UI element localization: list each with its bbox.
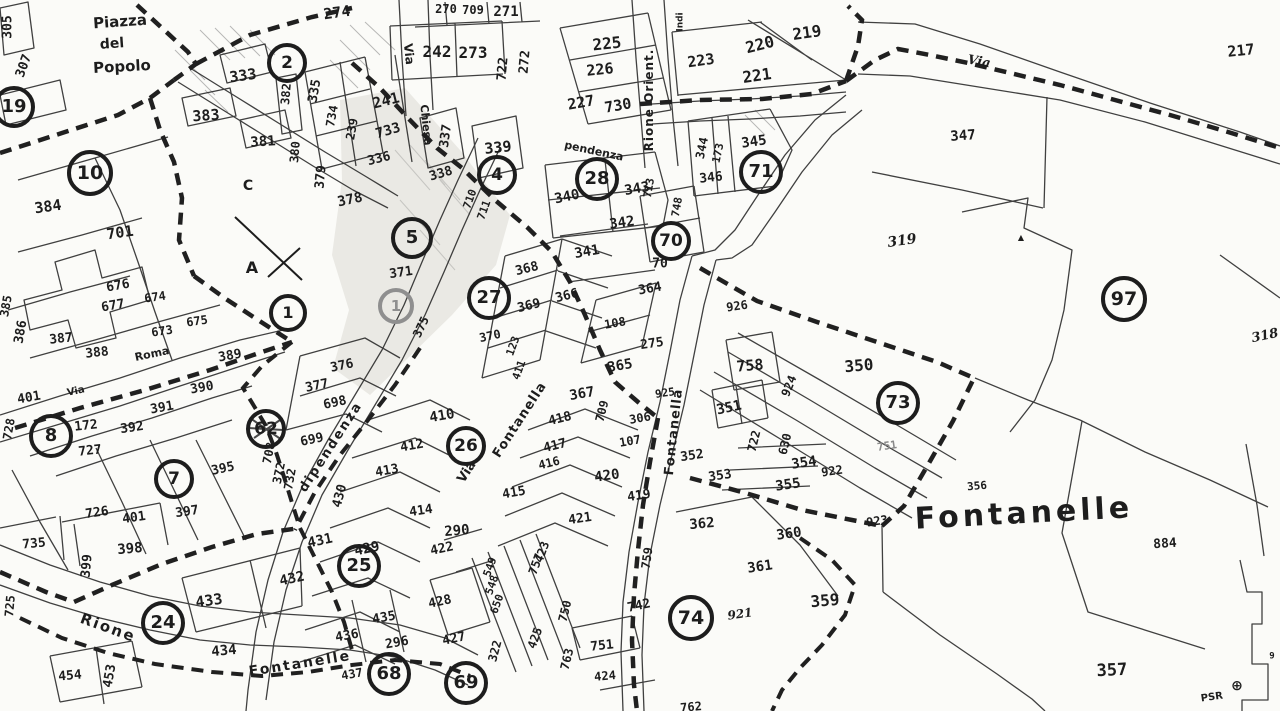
zone-marker-1: 1 <box>269 294 307 332</box>
cadastral-map-canvas: PiazzadelPopoloViaChiesaRione Orient.Ind… <box>0 0 1280 711</box>
zone-marker-2: 2 <box>267 43 307 83</box>
zone-marker-70: 70 <box>651 221 691 261</box>
zone-marker-74: 74 <box>668 595 714 641</box>
zone-marker-97: 97 <box>1101 276 1147 322</box>
zone-marker-28: 28 <box>575 157 619 201</box>
zone-marker-27: 27 <box>467 276 511 320</box>
zone-marker-73: 73 <box>876 381 920 425</box>
zone-marker-26: 26 <box>446 426 486 466</box>
zone-marker-7: 7 <box>154 459 194 499</box>
zone-marker-62-scribbled: 62 <box>246 409 286 449</box>
zone-marker-1-faded: 1 <box>378 288 414 324</box>
zone-marker-24: 24 <box>141 601 185 645</box>
zone-marker-69: 69 <box>444 661 488 705</box>
zone-marker-71: 71 <box>739 150 783 194</box>
zone-marker-25: 25 <box>337 544 381 588</box>
zone-marker-19: 19 <box>0 86 35 128</box>
zone-marker-8: 8 <box>29 414 73 458</box>
zone-marker-4: 4 <box>477 155 517 195</box>
zone-marker-68: 68 <box>367 652 411 696</box>
zone-marker-10: 10 <box>67 150 113 196</box>
map-zones-layer: 1921042871705112797738622672425686974 <box>0 0 1280 711</box>
zone-marker-5: 5 <box>391 217 433 259</box>
